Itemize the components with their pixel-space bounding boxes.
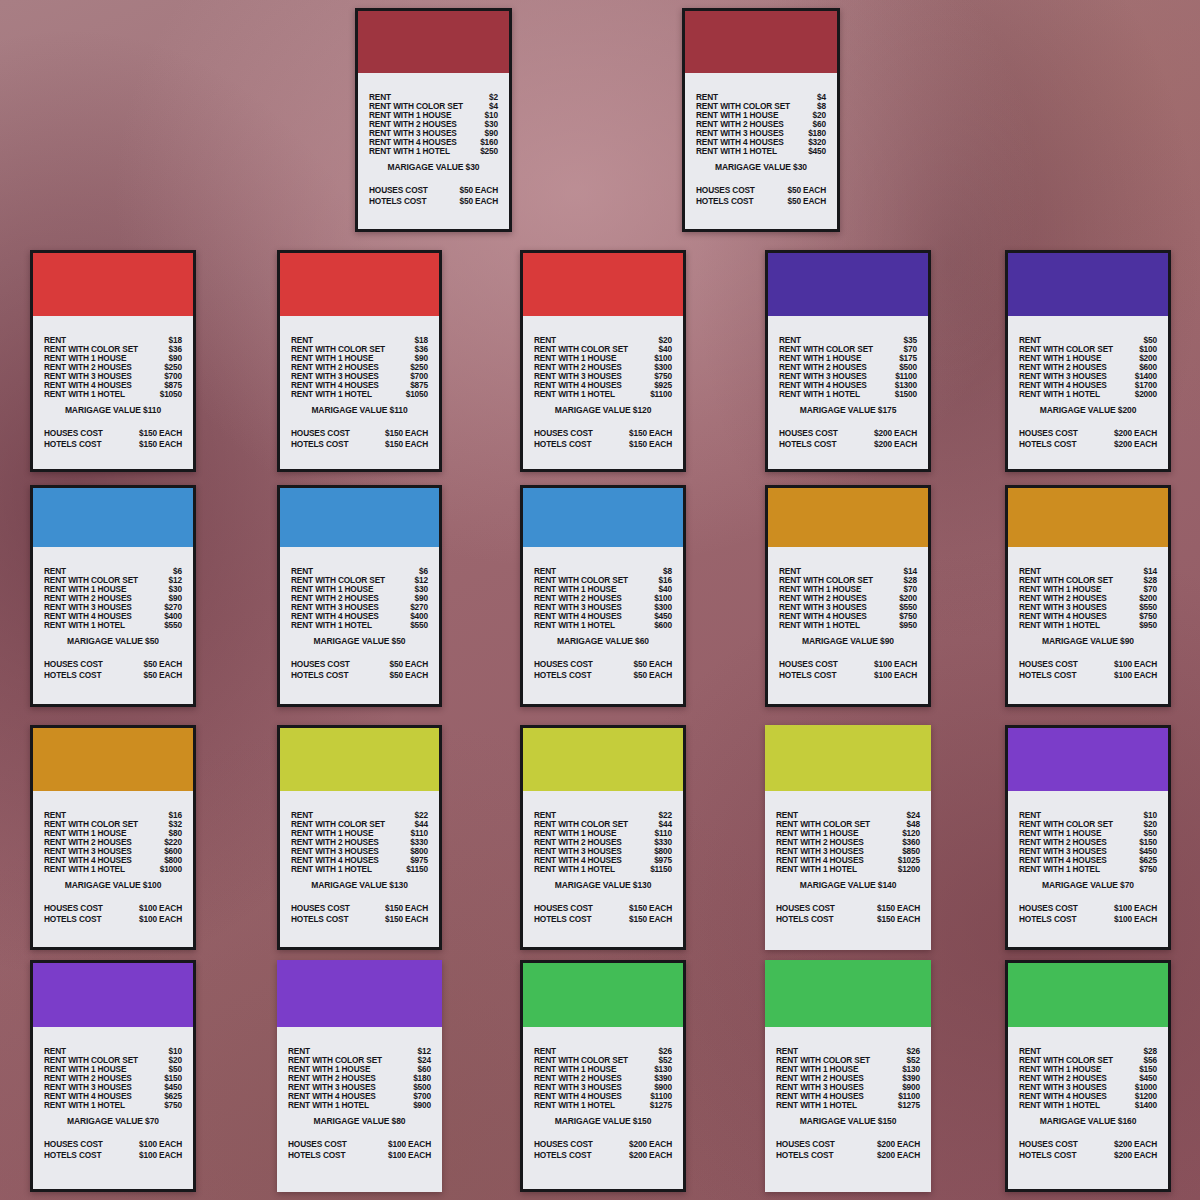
houses-cost-row: HOUSES COST $100 EACH xyxy=(44,903,182,914)
houses-cost-label: HOUSES COST xyxy=(534,903,593,914)
mortgage-value-line: MARIGAGE VALUE $110 xyxy=(44,405,182,415)
houses-cost-value: $100 EACH xyxy=(1114,659,1157,670)
mortgage-value-line: MARIGAGE VALUE $200 xyxy=(1019,405,1157,415)
card-color-band xyxy=(1008,488,1168,547)
houses-cost-label: HOUSES COST xyxy=(44,659,103,670)
property-card-blue-r2c1: RENT$6RENT WITH COLOR SET$12RENT WITH 1 … xyxy=(277,485,442,707)
rent-value: $750 xyxy=(1139,865,1157,874)
houses-cost-value: $150 EACH xyxy=(385,428,428,439)
rent-row: RENT WITH 1 HOTEL$550 xyxy=(291,621,428,630)
houses-cost-label: HOUSES COST xyxy=(291,428,350,439)
houses-cost-value: $150 EACH xyxy=(385,903,428,914)
rent-label: RENT WITH 1 HOTEL xyxy=(291,865,372,874)
property-card-orange-r2c4: RENT$14RENT WITH COLOR SET$28RENT WITH 1… xyxy=(1005,485,1171,707)
rent-row: RENT WITH 1 HOTEL$1275 xyxy=(534,1101,672,1110)
houses-cost-row: HOUSES COST $100 EACH xyxy=(1019,659,1157,670)
rent-label: RENT WITH 1 HOTEL xyxy=(1019,865,1100,874)
rent-table: RENT$26RENT WITH COLOR SET$52RENT WITH 1… xyxy=(534,1047,672,1110)
rent-value: $1200 xyxy=(898,865,920,874)
card-body: RENT$8RENT WITH COLOR SET$16RENT WITH 1 … xyxy=(523,547,683,704)
hotels-cost-label: HOTELS COST xyxy=(1019,439,1076,450)
property-card-green-r4c3: RENT$26RENT WITH COLOR SET$52RENT WITH 1… xyxy=(765,960,931,1192)
hotels-cost-row: HOTELS COST $100 EACH xyxy=(44,914,182,925)
hotels-cost-row: HOTELS COST $150 EACH xyxy=(534,914,672,925)
cost-table: HOUSES COST $150 EACH HOTELS COST $150 E… xyxy=(534,428,672,449)
hotels-cost-value: $150 EACH xyxy=(385,439,428,450)
hotels-cost-row: HOTELS COST $100 EACH xyxy=(1019,914,1157,925)
houses-cost-row: HOUSES COST $50 EACH xyxy=(44,659,182,670)
property-card-purple-r4c1: RENT$12RENT WITH COLOR SET$24RENT WITH 1… xyxy=(277,960,442,1192)
rent-label: RENT WITH 1 HOTEL xyxy=(776,865,857,874)
mortgage-value-line: MARIGAGE VALUE $100 xyxy=(44,880,182,890)
hotels-cost-label: HOTELS COST xyxy=(534,1150,591,1161)
rent-label: RENT WITH 1 HOTEL xyxy=(44,621,125,630)
rent-label: RENT WITH 1 HOTEL xyxy=(779,621,860,630)
cost-table: HOUSES COST $200 EACH HOTELS COST $200 E… xyxy=(1019,428,1157,449)
hotels-cost-value: $200 EACH xyxy=(877,1150,920,1161)
houses-cost-row: HOUSES COST $200 EACH xyxy=(1019,428,1157,439)
card-color-band xyxy=(280,253,439,316)
rent-row: RENT WITH 1 HOTEL$1400 xyxy=(1019,1101,1157,1110)
rent-row: RENT WITH 1 HOTEL$1200 xyxy=(776,865,920,874)
mortgage-value-line: MARIGAGE VALUE $120 xyxy=(534,405,672,415)
hotels-cost-row: HOTELS COST $200 EACH xyxy=(779,439,917,450)
card-body: RENT$18RENT WITH COLOR SET$36RENT WITH 1… xyxy=(33,316,193,469)
houses-cost-value: $100 EACH xyxy=(139,1139,182,1150)
rent-table: RENT$26RENT WITH COLOR SET$52RENT WITH 1… xyxy=(776,1047,920,1110)
rent-label: RENT WITH 1 HOTEL xyxy=(1019,1101,1100,1110)
hotels-cost-value: $50 EACH xyxy=(144,670,182,681)
hotels-cost-value: $100 EACH xyxy=(874,670,917,681)
card-color-band xyxy=(523,728,683,791)
mortgage-value-line: MARIGAGE VALUE $160 xyxy=(1019,1116,1157,1126)
cost-table: HOUSES COST $150 EACH HOTELS COST $150 E… xyxy=(776,903,920,924)
card-color-band xyxy=(523,253,683,316)
property-card-red-r1c1: RENT$18RENT WITH COLOR SET$36RENT WITH 1… xyxy=(277,250,442,472)
mortgage-value-line: MARIGAGE VALUE $175 xyxy=(779,405,917,415)
houses-cost-row: HOUSES COST $200 EACH xyxy=(779,428,917,439)
houses-cost-label: HOUSES COST xyxy=(779,428,838,439)
rent-value: $450 xyxy=(808,147,826,156)
rent-label: RENT WITH 1 HOTEL xyxy=(534,1101,615,1110)
rent-label: RENT WITH 1 HOTEL xyxy=(776,1101,857,1110)
mortgage-value-line: MARIGAGE VALUE $50 xyxy=(44,636,182,646)
rent-row: RENT WITH 1 HOTEL$750 xyxy=(44,1101,182,1110)
rent-label: RENT WITH 1 HOTEL xyxy=(534,865,615,874)
hotels-cost-label: HOTELS COST xyxy=(1019,670,1076,681)
hotels-cost-label: HOTELS COST xyxy=(776,914,833,925)
houses-cost-value: $150 EACH xyxy=(629,903,672,914)
cost-table: HOUSES COST $200 EACH HOTELS COST $200 E… xyxy=(534,1139,672,1160)
houses-cost-label: HOUSES COST xyxy=(776,903,835,914)
houses-cost-row: HOUSES COST $150 EACH xyxy=(534,428,672,439)
hotels-cost-value: $200 EACH xyxy=(874,439,917,450)
card-color-band xyxy=(765,960,931,1027)
rent-value: $750 xyxy=(164,1101,182,1110)
rent-row: RENT WITH 1 HOTEL$750 xyxy=(1019,865,1157,874)
rent-table: RENT$8RENT WITH COLOR SET$16RENT WITH 1 … xyxy=(534,567,672,630)
houses-cost-label: HOUSES COST xyxy=(1019,1139,1078,1150)
property-card-yellow-r3c1: RENT$22RENT WITH COLOR SET$44RENT WITH 1… xyxy=(277,725,442,950)
houses-cost-label: HOUSES COST xyxy=(696,185,755,196)
cost-table: HOUSES COST $100 EACH HOTELS COST $100 E… xyxy=(44,903,182,924)
card-color-band xyxy=(277,960,442,1027)
rent-value: $1275 xyxy=(898,1101,920,1110)
hotels-cost-value: $200 EACH xyxy=(1114,439,1157,450)
mortgage-value-line: MARIGAGE VALUE $150 xyxy=(776,1116,920,1126)
rent-table: RENT$18RENT WITH COLOR SET$36RENT WITH 1… xyxy=(291,336,428,399)
hotels-cost-value: $100 EACH xyxy=(139,1150,182,1161)
houses-cost-row: HOUSES COST $150 EACH xyxy=(534,903,672,914)
property-card-purple-r4c0: RENT$10RENT WITH COLOR SET$20RENT WITH 1… xyxy=(30,960,196,1192)
card-body: RENT$35RENT WITH COLOR SET$70RENT WITH 1… xyxy=(768,316,928,469)
rent-value: $1500 xyxy=(895,390,917,399)
card-body: RENT$12RENT WITH COLOR SET$24RENT WITH 1… xyxy=(277,1027,442,1192)
rent-label: RENT WITH 1 HOTEL xyxy=(288,1101,369,1110)
hotels-cost-label: HOTELS COST xyxy=(534,670,591,681)
hotels-cost-row: HOTELS COST $100 EACH xyxy=(44,1150,182,1161)
houses-cost-label: HOUSES COST xyxy=(369,185,428,196)
rent-table: RENT$22RENT WITH COLOR SET$44RENT WITH 1… xyxy=(291,811,428,874)
hotels-cost-label: HOTELS COST xyxy=(288,1150,345,1161)
houses-cost-row: HOUSES COST $150 EACH xyxy=(44,428,182,439)
houses-cost-label: HOUSES COST xyxy=(776,1139,835,1150)
rent-label: RENT WITH 1 HOTEL xyxy=(1019,390,1100,399)
rent-row: RENT WITH 1 HOTEL$1100 xyxy=(534,390,672,399)
rent-value: $1000 xyxy=(160,865,182,874)
card-color-band xyxy=(280,728,439,791)
hotels-cost-label: HOTELS COST xyxy=(44,439,101,450)
houses-cost-label: HOUSES COST xyxy=(288,1139,347,1150)
rent-table: RENT$24RENT WITH COLOR SET$48RENT WITH 1… xyxy=(776,811,920,874)
hotels-cost-value: $200 EACH xyxy=(1114,1150,1157,1161)
cost-table: HOUSES COST $100 EACH HOTELS COST $100 E… xyxy=(1019,903,1157,924)
property-card-blue-r2c0: RENT$6RENT WITH COLOR SET$12RENT WITH 1 … xyxy=(30,485,196,707)
hotels-cost-row: HOTELS COST $200 EACH xyxy=(1019,439,1157,450)
rent-table: RENT$2RENT WITH COLOR SET$4RENT WITH 1 H… xyxy=(369,93,498,156)
houses-cost-label: HOUSES COST xyxy=(779,659,838,670)
rent-table: RENT$14RENT WITH COLOR SET$28RENT WITH 1… xyxy=(1019,567,1157,630)
hotels-cost-row: HOTELS COST $150 EACH xyxy=(291,914,428,925)
property-card-red-r1c0: RENT$18RENT WITH COLOR SET$36RENT WITH 1… xyxy=(30,250,196,472)
hotels-cost-row: HOTELS COST $50 EACH xyxy=(696,196,826,207)
mortgage-value-line: MARIGAGE VALUE $90 xyxy=(1019,636,1157,646)
card-color-band xyxy=(1008,963,1168,1027)
houses-cost-row: HOUSES COST $100 EACH xyxy=(288,1139,431,1150)
mortgage-value-line: MARIGAGE VALUE $140 xyxy=(776,880,920,890)
card-body: RENT$16RENT WITH COLOR SET$32RENT WITH 1… xyxy=(33,791,193,947)
rent-value: $1400 xyxy=(1135,1101,1157,1110)
rent-row: RENT WITH 1 HOTEL$1150 xyxy=(291,865,428,874)
card-body: RENT$20RENT WITH COLOR SET$40RENT WITH 1… xyxy=(523,316,683,469)
mortgage-value-line: MARIGAGE VALUE $30 xyxy=(696,162,826,172)
hotels-cost-label: HOTELS COST xyxy=(696,196,753,207)
hotels-cost-label: HOTELS COST xyxy=(291,914,348,925)
cost-table: HOUSES COST $50 EACH HOTELS COST $50 EAC… xyxy=(534,659,672,680)
property-card-green-r4c2: RENT$26RENT WITH COLOR SET$52RENT WITH 1… xyxy=(520,960,686,1192)
hotels-cost-row: HOTELS COST $200 EACH xyxy=(534,1150,672,1161)
property-card-maroon-r0c0: RENT$2RENT WITH COLOR SET$4RENT WITH 1 H… xyxy=(355,8,512,232)
property-card-yellow-r3c2: RENT$22RENT WITH COLOR SET$44RENT WITH 1… xyxy=(520,725,686,950)
houses-cost-label: HOUSES COST xyxy=(534,659,593,670)
mortgage-value-line: MARIGAGE VALUE $30 xyxy=(369,162,498,172)
houses-cost-value: $50 EACH xyxy=(144,659,182,670)
houses-cost-value: $100 EACH xyxy=(388,1139,431,1150)
card-color-band xyxy=(685,11,837,73)
hotels-cost-value: $50 EACH xyxy=(390,670,428,681)
cost-table: HOUSES COST $100 EACH HOTELS COST $100 E… xyxy=(779,659,917,680)
rent-table: RENT$20RENT WITH COLOR SET$40RENT WITH 1… xyxy=(534,336,672,399)
houses-cost-value: $100 EACH xyxy=(874,659,917,670)
property-card-indigo-r1c4: RENT$50RENT WITH COLOR SET$100RENT WITH … xyxy=(1005,250,1171,472)
houses-cost-label: HOUSES COST xyxy=(291,659,350,670)
mortgage-value-line: MARIGAGE VALUE $70 xyxy=(44,1116,182,1126)
hotels-cost-label: HOTELS COST xyxy=(779,670,836,681)
card-color-band xyxy=(523,963,683,1027)
rent-table: RENT$35RENT WITH COLOR SET$70RENT WITH 1… xyxy=(779,336,917,399)
property-card-purple-r3c4: RENT$10RENT WITH COLOR SET$20RENT WITH 1… xyxy=(1005,725,1171,950)
hotels-cost-row: HOTELS COST $50 EACH xyxy=(44,670,182,681)
cost-table: HOUSES COST $50 EACH HOTELS COST $50 EAC… xyxy=(696,185,826,206)
hotels-cost-label: HOTELS COST xyxy=(779,439,836,450)
hotels-cost-row: HOTELS COST $100 EACH xyxy=(288,1150,431,1161)
rent-value: $550 xyxy=(410,621,428,630)
mortgage-value-line: MARIGAGE VALUE $50 xyxy=(291,636,428,646)
hotels-cost-row: HOTELS COST $200 EACH xyxy=(1019,1150,1157,1161)
rent-row: RENT WITH 1 HOTEL$550 xyxy=(44,621,182,630)
mortgage-value-line: MARIGAGE VALUE $70 xyxy=(1019,880,1157,890)
houses-cost-label: HOUSES COST xyxy=(291,903,350,914)
houses-cost-label: HOUSES COST xyxy=(1019,659,1078,670)
card-color-band xyxy=(768,253,928,316)
hotels-cost-label: HOTELS COST xyxy=(291,439,348,450)
mortgage-value-line: MARIGAGE VALUE $150 xyxy=(534,1116,672,1126)
cost-table: HOUSES COST $100 EACH HOTELS COST $100 E… xyxy=(1019,659,1157,680)
houses-cost-value: $50 EACH xyxy=(390,659,428,670)
houses-cost-label: HOUSES COST xyxy=(44,428,103,439)
houses-cost-row: HOUSES COST $200 EACH xyxy=(776,1139,920,1150)
rent-table: RENT$10RENT WITH COLOR SET$20RENT WITH 1… xyxy=(1019,811,1157,874)
hotels-cost-row: HOTELS COST $150 EACH xyxy=(44,439,182,450)
houses-cost-value: $50 EACH xyxy=(634,659,672,670)
rent-row: RENT WITH 1 HOTEL$250 xyxy=(369,147,498,156)
hotels-cost-label: HOTELS COST xyxy=(291,670,348,681)
rent-row: RENT WITH 1 HOTEL$900 xyxy=(288,1101,431,1110)
hotels-cost-row: HOTELS COST $150 EACH xyxy=(534,439,672,450)
card-color-band xyxy=(765,725,931,791)
rent-label: RENT WITH 1 HOTEL xyxy=(696,147,777,156)
rent-table: RENT$22RENT WITH COLOR SET$44RENT WITH 1… xyxy=(534,811,672,874)
houses-cost-row: HOUSES COST $200 EACH xyxy=(534,1139,672,1150)
card-body: RENT$2RENT WITH COLOR SET$4RENT WITH 1 H… xyxy=(358,73,509,229)
card-color-band xyxy=(768,488,928,547)
card-color-band xyxy=(523,488,683,547)
rent-row: RENT WITH 1 HOTEL$1275 xyxy=(776,1101,920,1110)
rent-table: RENT$16RENT WITH COLOR SET$32RENT WITH 1… xyxy=(44,811,182,874)
card-color-band xyxy=(1008,728,1168,791)
rent-value: $1100 xyxy=(650,390,672,399)
card-body: RENT$24RENT WITH COLOR SET$48RENT WITH 1… xyxy=(765,791,931,950)
houses-cost-value: $150 EACH xyxy=(139,428,182,439)
card-color-band xyxy=(33,728,193,791)
houses-cost-label: HOUSES COST xyxy=(44,1139,103,1150)
card-body: RENT$28RENT WITH COLOR SET$56RENT WITH 1… xyxy=(1008,1027,1168,1189)
rent-label: RENT WITH 1 HOTEL xyxy=(44,865,125,874)
property-card-maroon-r0c1: RENT$4RENT WITH COLOR SET$8RENT WITH 1 H… xyxy=(682,8,840,232)
property-card-orange-r2c3: RENT$14RENT WITH COLOR SET$28RENT WITH 1… xyxy=(765,485,931,707)
mortgage-value-line: MARIGAGE VALUE $80 xyxy=(288,1116,431,1126)
property-card-yellow-r3c3: RENT$24RENT WITH COLOR SET$48RENT WITH 1… xyxy=(765,725,931,950)
hotels-cost-row: HOTELS COST $50 EACH xyxy=(291,670,428,681)
hotels-cost-label: HOTELS COST xyxy=(44,670,101,681)
houses-cost-row: HOUSES COST $100 EACH xyxy=(1019,903,1157,914)
rent-table: RENT$50RENT WITH COLOR SET$100RENT WITH … xyxy=(1019,336,1157,399)
card-body: RENT$10RENT WITH COLOR SET$20RENT WITH 1… xyxy=(33,1027,193,1189)
rent-table: RENT$10RENT WITH COLOR SET$20RENT WITH 1… xyxy=(44,1047,182,1110)
rent-value: $1150 xyxy=(650,865,672,874)
hotels-cost-label: HOTELS COST xyxy=(369,196,426,207)
rent-label: RENT WITH 1 HOTEL xyxy=(44,390,125,399)
hotels-cost-row: HOTELS COST $100 EACH xyxy=(779,670,917,681)
hotels-cost-label: HOTELS COST xyxy=(534,914,591,925)
cost-table: HOUSES COST $150 EACH HOTELS COST $150 E… xyxy=(291,903,428,924)
rent-row: RENT WITH 1 HOTEL$600 xyxy=(534,621,672,630)
houses-cost-label: HOUSES COST xyxy=(534,1139,593,1150)
hotels-cost-value: $150 EACH xyxy=(139,439,182,450)
rent-value: $2000 xyxy=(1135,390,1157,399)
card-color-band xyxy=(33,253,193,316)
houses-cost-label: HOUSES COST xyxy=(534,428,593,439)
mortgage-value-line: MARIGAGE VALUE $130 xyxy=(291,880,428,890)
card-body: RENT$26RENT WITH COLOR SET$52RENT WITH 1… xyxy=(765,1027,931,1192)
card-color-band xyxy=(358,11,509,73)
hotels-cost-row: HOTELS COST $100 EACH xyxy=(1019,670,1157,681)
rent-label: RENT WITH 1 HOTEL xyxy=(291,390,372,399)
houses-cost-row: HOUSES COST $150 EACH xyxy=(291,903,428,914)
cost-table: HOUSES COST $200 EACH HOTELS COST $200 E… xyxy=(776,1139,920,1160)
rent-row: RENT WITH 1 HOTEL$1000 xyxy=(44,865,182,874)
rent-label: RENT WITH 1 HOTEL xyxy=(534,621,615,630)
rent-value: $950 xyxy=(899,621,917,630)
houses-cost-row: HOUSES COST $100 EACH xyxy=(44,1139,182,1150)
hotels-cost-value: $150 EACH xyxy=(629,439,672,450)
rent-table: RENT$6RENT WITH COLOR SET$12RENT WITH 1 … xyxy=(44,567,182,630)
hotels-cost-row: HOTELS COST $150 EACH xyxy=(291,439,428,450)
property-card-red-r1c2: RENT$20RENT WITH COLOR SET$40RENT WITH 1… xyxy=(520,250,686,472)
houses-cost-row: HOUSES COST $150 EACH xyxy=(291,428,428,439)
rent-value: $550 xyxy=(164,621,182,630)
card-body: RENT$50RENT WITH COLOR SET$100RENT WITH … xyxy=(1008,316,1168,469)
rent-label: RENT WITH 1 HOTEL xyxy=(44,1101,125,1110)
rent-label: RENT WITH 1 HOTEL xyxy=(779,390,860,399)
hotels-cost-value: $100 EACH xyxy=(388,1150,431,1161)
card-body: RENT$6RENT WITH COLOR SET$12RENT WITH 1 … xyxy=(33,547,193,704)
houses-cost-value: $200 EACH xyxy=(629,1139,672,1150)
hotels-cost-row: HOTELS COST $50 EACH xyxy=(369,196,498,207)
property-card-blue-r2c2: RENT$8RENT WITH COLOR SET$16RENT WITH 1 … xyxy=(520,485,686,707)
rent-row: RENT WITH 1 HOTEL$1150 xyxy=(534,865,672,874)
hotels-cost-label: HOTELS COST xyxy=(534,439,591,450)
cost-table: HOUSES COST $50 EACH HOTELS COST $50 EAC… xyxy=(291,659,428,680)
houses-cost-value: $200 EACH xyxy=(1114,1139,1157,1150)
rent-value: $1275 xyxy=(650,1101,672,1110)
hotels-cost-label: HOTELS COST xyxy=(44,1150,101,1161)
cost-table: HOUSES COST $50 EACH HOTELS COST $50 EAC… xyxy=(44,659,182,680)
cost-table: HOUSES COST $50 EACH HOTELS COST $50 EAC… xyxy=(369,185,498,206)
mortgage-value-line: MARIGAGE VALUE $130 xyxy=(534,880,672,890)
rent-table: RENT$6RENT WITH COLOR SET$12RENT WITH 1 … xyxy=(291,567,428,630)
rent-row: RENT WITH 1 HOTEL$450 xyxy=(696,147,826,156)
rent-table: RENT$12RENT WITH COLOR SET$24RENT WITH 1… xyxy=(288,1047,431,1110)
mortgage-value-line: MARIGAGE VALUE $110 xyxy=(291,405,428,415)
hotels-cost-row: HOTELS COST $200 EACH xyxy=(776,1150,920,1161)
houses-cost-row: HOUSES COST $50 EACH xyxy=(696,185,826,196)
cost-table: HOUSES COST $150 EACH HOTELS COST $150 E… xyxy=(534,903,672,924)
rent-value: $600 xyxy=(654,621,672,630)
rent-label: RENT WITH 1 HOTEL xyxy=(369,147,450,156)
houses-cost-label: HOUSES COST xyxy=(1019,903,1078,914)
hotels-cost-label: HOTELS COST xyxy=(1019,1150,1076,1161)
cost-table: HOUSES COST $200 EACH HOTELS COST $200 E… xyxy=(1019,1139,1157,1160)
card-body: RENT$18RENT WITH COLOR SET$36RENT WITH 1… xyxy=(280,316,439,469)
card-color-band xyxy=(33,963,193,1027)
rent-row: RENT WITH 1 HOTEL$950 xyxy=(779,621,917,630)
rent-row: RENT WITH 1 HOTEL$1050 xyxy=(44,390,182,399)
card-body: RENT$14RENT WITH COLOR SET$28RENT WITH 1… xyxy=(768,547,928,704)
houses-cost-row: HOUSES COST $50 EACH xyxy=(291,659,428,670)
property-card-indigo-r1c3: RENT$35RENT WITH COLOR SET$70RENT WITH 1… xyxy=(765,250,931,472)
card-body: RENT$14RENT WITH COLOR SET$28RENT WITH 1… xyxy=(1008,547,1168,704)
houses-cost-row: HOUSES COST $150 EACH xyxy=(776,903,920,914)
hotels-cost-label: HOTELS COST xyxy=(44,914,101,925)
houses-cost-row: HOUSES COST $100 EACH xyxy=(779,659,917,670)
card-color-band xyxy=(1008,253,1168,316)
cost-table: HOUSES COST $150 EACH HOTELS COST $150 E… xyxy=(291,428,428,449)
houses-cost-value: $50 EACH xyxy=(460,185,498,196)
hotels-cost-value: $50 EACH xyxy=(460,196,498,207)
rent-value: $1050 xyxy=(406,390,428,399)
rent-value: $950 xyxy=(1139,621,1157,630)
cost-table: HOUSES COST $150 EACH HOTELS COST $150 E… xyxy=(44,428,182,449)
hotels-cost-value: $150 EACH xyxy=(629,914,672,925)
hotels-cost-row: HOTELS COST $50 EACH xyxy=(534,670,672,681)
hotels-cost-value: $50 EACH xyxy=(634,670,672,681)
hotels-cost-value: $100 EACH xyxy=(139,914,182,925)
mortgage-value-line: MARIGAGE VALUE $60 xyxy=(534,636,672,646)
cost-table: HOUSES COST $100 EACH HOTELS COST $100 E… xyxy=(288,1139,431,1160)
hotels-cost-value: $100 EACH xyxy=(1114,670,1157,681)
rent-table: RENT$18RENT WITH COLOR SET$36RENT WITH 1… xyxy=(44,336,182,399)
houses-cost-value: $200 EACH xyxy=(1114,428,1157,439)
rent-row: RENT WITH 1 HOTEL$1500 xyxy=(779,390,917,399)
rent-row: RENT WITH 1 HOTEL$950 xyxy=(1019,621,1157,630)
rent-value: $900 xyxy=(413,1101,431,1110)
rent-label: RENT WITH 1 HOTEL xyxy=(1019,621,1100,630)
houses-cost-value: $100 EACH xyxy=(139,903,182,914)
cost-table: HOUSES COST $100 EACH HOTELS COST $100 E… xyxy=(44,1139,182,1160)
houses-cost-label: HOUSES COST xyxy=(1019,428,1078,439)
rent-table: RENT$14RENT WITH COLOR SET$28RENT WITH 1… xyxy=(779,567,917,630)
card-body: RENT$6RENT WITH COLOR SET$12RENT WITH 1 … xyxy=(280,547,439,704)
houses-cost-value: $150 EACH xyxy=(877,903,920,914)
houses-cost-value: $50 EACH xyxy=(788,185,826,196)
houses-cost-value: $200 EACH xyxy=(877,1139,920,1150)
hotels-cost-label: HOTELS COST xyxy=(776,1150,833,1161)
rent-label: RENT WITH 1 HOTEL xyxy=(534,390,615,399)
houses-cost-value: $200 EACH xyxy=(874,428,917,439)
property-cards-board: RENT$2RENT WITH COLOR SET$4RENT WITH 1 H… xyxy=(0,0,1200,1200)
houses-cost-label: HOUSES COST xyxy=(44,903,103,914)
